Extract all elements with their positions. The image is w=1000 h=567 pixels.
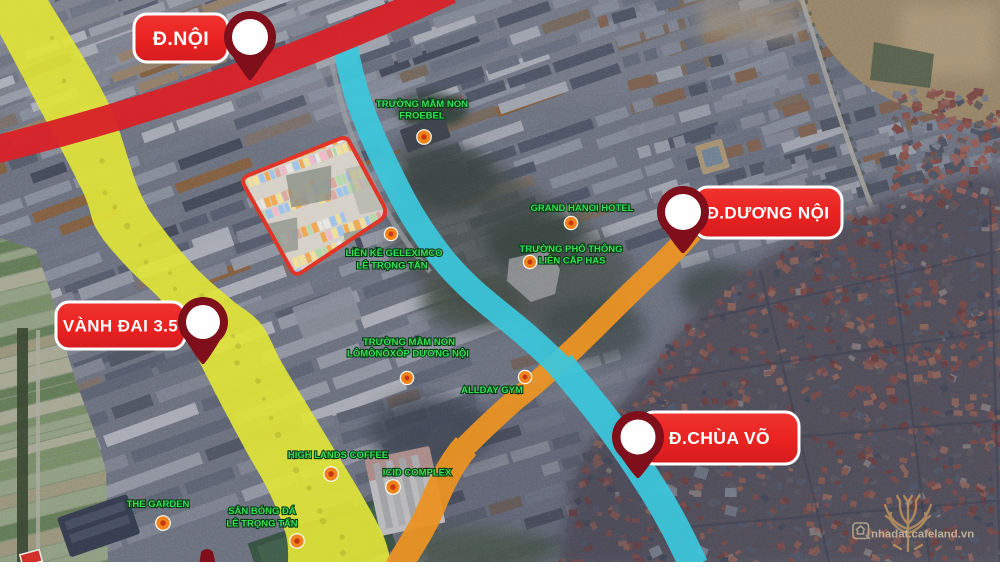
svg-text:TRƯỜNG MẦM NON: TRƯỜNG MẦM NON <box>363 336 455 348</box>
svg-text:LÊ TRỌNG TẤN: LÊ TRỌNG TẤN <box>226 518 297 530</box>
svg-text:GRAND HANOI HOTEL: GRAND HANOI HOTEL <box>531 203 634 214</box>
svg-text:ICID COMPLEX: ICID COMPLEX <box>383 468 452 479</box>
svg-text:nhadat.cafeland.vn: nhadat.cafeland.vn <box>871 529 974 541</box>
svg-text:HIGH LANDS COFFEE: HIGH LANDS COFFEE <box>288 450 388 461</box>
svg-text:THE GARDEN: THE GARDEN <box>127 499 190 510</box>
svg-text:LIÊN CẤP HAS: LIÊN CẤP HAS <box>539 255 606 267</box>
svg-text:LÊ TRỌNG TẤN: LÊ TRỌNG TẤN <box>356 260 427 272</box>
svg-text:Đ.CHÙA VÕ: Đ.CHÙA VÕ <box>669 427 770 448</box>
svg-text:Đ.DƯƠNG NỘI: Đ.DƯƠNG NỘI <box>707 203 830 222</box>
svg-text:VÀNH ĐAI 3.5: VÀNH ĐAI 3.5 <box>63 316 178 335</box>
svg-text:FROEBEL: FROEBEL <box>399 111 445 122</box>
svg-text:TRƯỜNG PHỔ THÔNG: TRƯỜNG PHỔ THÔNG <box>519 243 622 255</box>
svg-text:ALLDAY GYM: ALLDAY GYM <box>461 385 523 396</box>
svg-text:TRƯỜNG MẦM NON: TRƯỜNG MẦM NON <box>376 98 468 110</box>
svg-text:LIỀN KỀ GELEXIMCO: LIỀN KỀ GELEXIMCO <box>345 248 442 259</box>
svg-text:LÔMÔNÔXỐP DƯƠNG NỘI: LÔMÔNÔXỐP DƯƠNG NỘI <box>347 348 469 360</box>
svg-text:Đ.NỘI: Đ.NỘI <box>153 26 209 50</box>
svg-text:SÂN BÓNG ĐÁ: SÂN BÓNG ĐÁ <box>228 505 296 517</box>
